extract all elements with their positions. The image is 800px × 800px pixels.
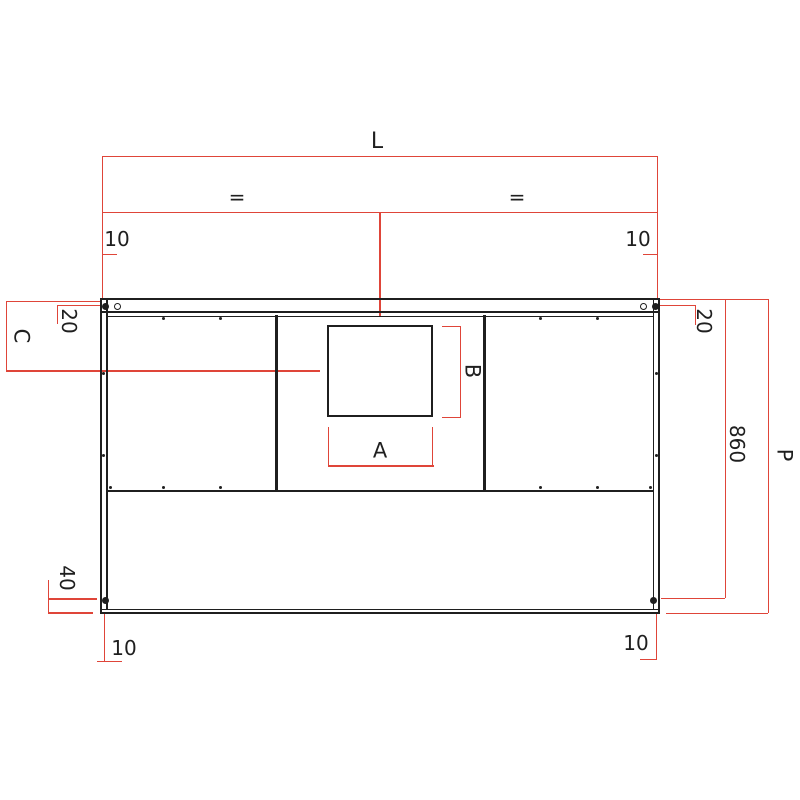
divider-left <box>275 315 278 491</box>
dim-tick-p-bottom <box>666 613 768 614</box>
rivet <box>596 317 599 320</box>
dim-ext-a-left <box>328 427 329 466</box>
frame-right-edge-outer <box>658 298 660 614</box>
dim-tick-b-bottom <box>442 417 460 418</box>
dim-ext-40 <box>48 580 49 614</box>
dim-label-top-left-10: 10 <box>104 229 129 249</box>
frame-right-edge-inner <box>653 300 655 610</box>
dim-ext-bottom-right-10 <box>656 613 657 660</box>
frame-left-edge-inner <box>106 300 108 610</box>
rivet <box>162 486 165 489</box>
dim-leader-c-to-opening <box>6 370 320 371</box>
dim-line-right-top <box>658 299 768 300</box>
dim-label-b: B <box>462 364 483 378</box>
dim-label-40: 40 <box>57 565 77 590</box>
dim-tick-bottom-left-10 <box>97 661 122 662</box>
dim-label-p: P <box>774 449 795 462</box>
bolt-top-right <box>652 303 659 310</box>
divider-right <box>483 315 486 491</box>
center-opening <box>327 325 433 417</box>
dim-line-length <box>102 156 657 157</box>
equal-mark-left: = <box>229 187 246 207</box>
dim-tick-bottom-right-10 <box>640 659 657 660</box>
equal-mark-right: = <box>509 187 526 207</box>
dim-tick-860-bottom <box>661 598 725 599</box>
dim-label-length: L <box>371 131 383 153</box>
dim-label-a: A <box>373 441 387 462</box>
rivet <box>219 486 222 489</box>
rivet <box>102 454 105 457</box>
dim-tick-40-top <box>48 598 97 599</box>
panel-top-line <box>106 316 654 318</box>
dim-label-top-right-10: 10 <box>625 229 650 249</box>
rivet <box>109 486 112 489</box>
top-rail-bottom-line <box>101 311 659 313</box>
middle-shelf-line <box>106 490 654 493</box>
dim-line-c-vertical <box>6 301 7 371</box>
dim-ext-left-top <box>102 156 103 298</box>
rivet <box>655 454 658 457</box>
dim-ext-a-right <box>432 427 433 466</box>
dim-ext-center <box>379 212 380 317</box>
frame-bottom-edge <box>100 612 660 614</box>
bolt-bottom-right <box>650 597 657 604</box>
rivet <box>539 317 542 320</box>
dim-tick-top-left-10 <box>102 254 117 255</box>
rivet <box>649 486 652 489</box>
dim-ext-right-top <box>657 156 658 298</box>
technical-drawing-canvas: L = = 10 10 20 20 C B A 860 P 40 10 10 <box>0 0 800 800</box>
rivet <box>483 487 486 490</box>
dim-label-bottom-right-10: 10 <box>623 633 648 653</box>
rivet <box>102 372 105 375</box>
dim-line-p <box>768 299 769 613</box>
bolt-hole-top-left <box>114 303 121 310</box>
rivet <box>539 486 542 489</box>
rivet <box>219 317 222 320</box>
dim-label-left-20: 20 <box>59 308 79 333</box>
rivet <box>655 372 658 375</box>
dim-line-a <box>328 465 434 466</box>
dim-label-860: 860 <box>727 425 747 463</box>
rivet <box>483 317 486 320</box>
dim-tick-b-top <box>442 326 460 327</box>
rivet <box>275 487 278 490</box>
dim-tick-left-20 <box>57 305 102 306</box>
dim-label-c: C <box>11 329 32 344</box>
dim-ext-bottom-left-10 <box>104 613 105 662</box>
dim-label-bottom-left-10: 10 <box>111 638 136 658</box>
dim-tick-40-bottom <box>48 612 93 613</box>
rivet <box>162 317 165 320</box>
dim-line-c-top <box>6 301 102 302</box>
dim-label-right-20: 20 <box>694 308 714 333</box>
rivet <box>275 317 278 320</box>
dim-tick-top-right-10 <box>643 254 658 255</box>
rivet <box>596 486 599 489</box>
bolt-bottom-left <box>102 597 109 604</box>
bolt-top-left <box>102 303 109 310</box>
bottom-rail-top-line <box>101 609 659 611</box>
bolt-hole-top-right <box>640 303 647 310</box>
dim-tick-right-20 <box>658 305 696 306</box>
frame-top-edge <box>100 298 660 300</box>
